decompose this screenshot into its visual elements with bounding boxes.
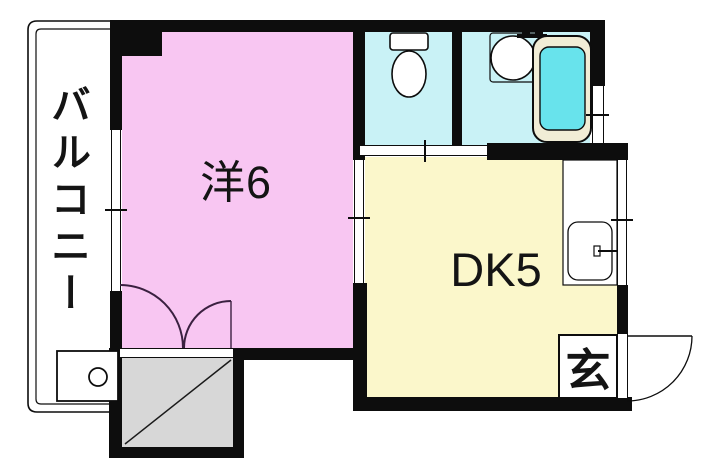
- wall-dk-bottom: [356, 397, 632, 411]
- dk-window: [617, 160, 627, 285]
- wall-corner-pillar: [110, 20, 162, 56]
- wall-toilet-bath-divider: [452, 32, 462, 145]
- wall-closet-left: [109, 348, 122, 458]
- entrance-door-frame: [617, 334, 628, 398]
- entrance-label: 玄: [565, 334, 610, 399]
- wall-closet-right: [233, 358, 244, 458]
- western-room-label: 洋6: [150, 159, 322, 206]
- floorplan-canvas: 玄 バルコニー 洋6 DK5: [0, 0, 725, 474]
- toilet-sliding-door: [360, 145, 487, 156]
- entrance-door-arc: [627, 336, 692, 401]
- wall-closet-bottom: [109, 447, 244, 458]
- bathroom-floor: [462, 32, 590, 145]
- wall-bath-right: [590, 20, 605, 86]
- closet-door-opening: [120, 348, 233, 358]
- closet-floor: [120, 358, 233, 447]
- dining-kitchen-label: DK5: [413, 245, 579, 294]
- wall-divider-lower: [353, 283, 367, 411]
- room-divider-sliding-door: [354, 160, 364, 283]
- wall-dk-right: [617, 285, 628, 334]
- bathroom-window: [592, 86, 604, 143]
- toilet-room-floor: [365, 32, 452, 145]
- wall-western-bottom: [233, 348, 365, 360]
- wall-dk-top: [487, 143, 628, 160]
- wall-divider-upper: [353, 20, 365, 160]
- entrance-area: 玄: [558, 334, 618, 399]
- washer-drain-icon: [89, 368, 107, 386]
- balcony-label: バルコニー: [46, 84, 88, 319]
- balcony-window: [111, 130, 121, 291]
